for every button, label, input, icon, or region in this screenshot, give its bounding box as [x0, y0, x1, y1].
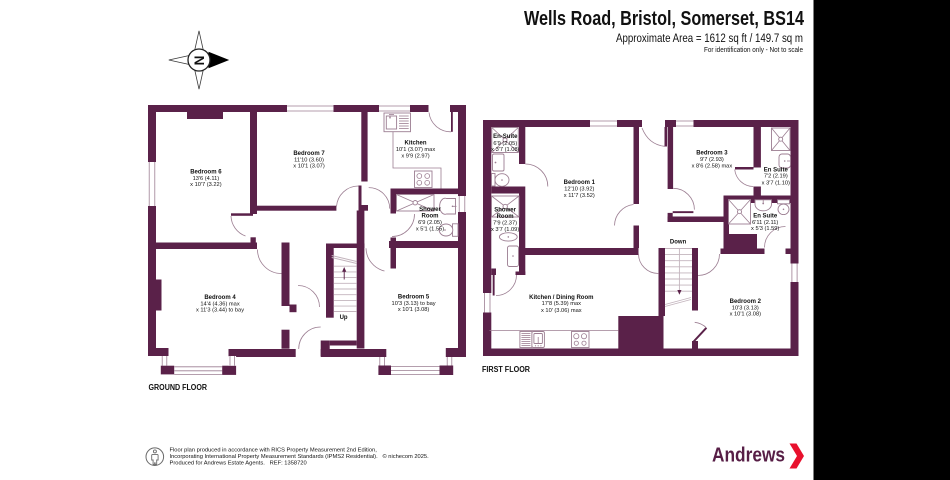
- svg-text:Bedroom 7: Bedroom 7: [293, 151, 325, 157]
- svg-text:En Suite: En Suite: [764, 168, 789, 174]
- svg-text:Up: Up: [340, 315, 348, 321]
- svg-text:9'7 (2.93): 9'7 (2.93): [700, 157, 724, 163]
- svg-text:6'11 (2.11): 6'11 (2.11): [752, 220, 778, 226]
- svg-text:x 11'3 (3.44) to bay: x 11'3 (3.44) to bay: [196, 308, 244, 314]
- svg-text:Bedroom 6: Bedroom 6: [190, 169, 222, 175]
- svg-text:Floor plan produced in accorda: Floor plan produced in accordance with R…: [170, 447, 378, 453]
- svg-text:FIRST FLOOR: FIRST FLOOR: [482, 365, 530, 374]
- svg-text:Bedroom 5: Bedroom 5: [398, 295, 430, 301]
- svg-text:x 5'1 (1.55): x 5'1 (1.55): [416, 226, 444, 232]
- svg-text:14'4 (4.36) max: 14'4 (4.36) max: [200, 301, 239, 307]
- svg-text:Bedroom 1: Bedroom 1: [564, 180, 596, 186]
- svg-text:Bedroom 4: Bedroom 4: [204, 295, 236, 301]
- svg-text:Wells Road, Bristol, Somerset,: Wells Road, Bristol, Somerset, BS14: [524, 8, 805, 30]
- svg-text:Down: Down: [670, 239, 687, 245]
- svg-text:x 10'1 (3.08): x 10'1 (3.08): [730, 312, 762, 318]
- svg-text:Kitchen / Dining Room: Kitchen / Dining Room: [529, 295, 593, 301]
- svg-text:6'9 (2.05): 6'9 (2.05): [418, 220, 442, 226]
- svg-text:11'10 (3.60): 11'10 (3.60): [294, 157, 324, 163]
- svg-text:Kitchen: Kitchen: [404, 140, 426, 146]
- svg-text:GROUND FLOOR: GROUND FLOOR: [149, 383, 208, 392]
- svg-text:x 3'7 (1.10): x 3'7 (1.10): [762, 180, 790, 186]
- svg-text:x 3'7 (1.08): x 3'7 (1.08): [491, 147, 519, 153]
- svg-text:10'3 (3.13) to bay: 10'3 (3.13) to bay: [392, 301, 436, 307]
- svg-text:12'10 (3.92): 12'10 (3.92): [564, 186, 594, 192]
- svg-text:Bedroom 3: Bedroom 3: [696, 151, 728, 157]
- svg-text:Produced for Andrews Estate Ag: Produced for Andrews Estate Agents. REF:…: [170, 460, 307, 466]
- svg-text:x 8'6 (2.58) max: x 8'6 (2.58) max: [692, 164, 733, 170]
- svg-text:Incorporating International Pr: Incorporating International Property Mea…: [170, 453, 430, 460]
- svg-text:En Suite: En Suite: [753, 213, 778, 219]
- svg-text:13'6 (4.11): 13'6 (4.11): [193, 176, 220, 182]
- svg-text:10'1 (3.07) max: 10'1 (3.07) max: [396, 147, 435, 153]
- svg-text:Andrews: Andrews: [712, 445, 785, 467]
- svg-text:x 5'3 (1.59): x 5'3 (1.59): [751, 226, 779, 232]
- svg-text:x 10' (3.06) max: x 10' (3.06) max: [541, 308, 582, 314]
- svg-text:x 3'7 (1.09): x 3'7 (1.09): [491, 227, 519, 233]
- svg-text:6'9 (2.05): 6'9 (2.05): [493, 141, 517, 147]
- svg-text:For identification only - Not: For identification only - Not to scale: [704, 47, 803, 54]
- svg-text:x 10'1 (3.08): x 10'1 (3.08): [398, 307, 430, 313]
- svg-text:Bedroom 2: Bedroom 2: [730, 299, 762, 305]
- svg-text:Room: Room: [422, 214, 439, 220]
- svg-text:10'3 (3.13): 10'3 (3.13): [732, 305, 759, 311]
- svg-text:x 9'9 (2.97): x 9'9 (2.97): [401, 154, 429, 160]
- svg-text:Shower: Shower: [494, 208, 516, 214]
- svg-text:Shower: Shower: [419, 207, 441, 213]
- svg-text:N: N: [192, 56, 207, 66]
- svg-text:x 11'7 (3.52): x 11'7 (3.52): [564, 193, 595, 199]
- svg-text:Approximate Area = 1612 sq ft: Approximate Area = 1612 sq ft / 149.7 sq…: [616, 31, 803, 45]
- svg-text:7'2 (2.19): 7'2 (2.19): [764, 174, 788, 180]
- svg-text:7'9 (2.37): 7'9 (2.37): [493, 221, 517, 227]
- svg-text:x 10'1 (3.07): x 10'1 (3.07): [293, 164, 325, 170]
- svg-text:17'8 (5.39) max: 17'8 (5.39) max: [542, 301, 581, 307]
- svg-text:x 10'7 (3.22): x 10'7 (3.22): [190, 182, 222, 188]
- svg-text:En-Suite: En-Suite: [493, 134, 518, 140]
- svg-text:Room: Room: [497, 214, 514, 220]
